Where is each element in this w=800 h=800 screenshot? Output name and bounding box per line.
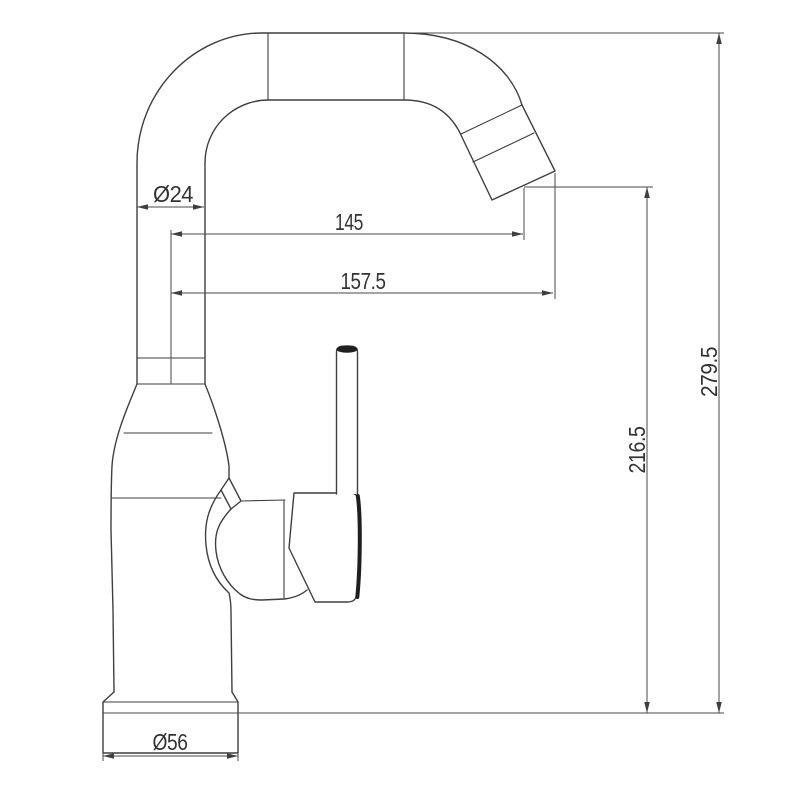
dim-outlet-height: 216.5 xyxy=(624,187,650,713)
arrowhead-left xyxy=(103,753,114,759)
dim-base-diameter: Ø56 xyxy=(103,729,238,759)
dim-label-reach-overall: 157.5 xyxy=(341,268,386,294)
dim-label-outlet-height: 216.5 xyxy=(624,427,650,474)
faucet-technical-drawing: Ø24 145 157.5 216.5 xyxy=(0,0,800,800)
dim-label-overall-height: 279.5 xyxy=(696,347,722,397)
arrowhead-bottom xyxy=(716,702,722,713)
arrowhead-left xyxy=(171,290,182,296)
arrowhead-right xyxy=(193,204,204,210)
housing-top-edge xyxy=(241,500,285,501)
dim-label-tube-diameter: Ø24 xyxy=(153,181,194,207)
handle-stick-fill xyxy=(337,346,358,494)
handle-base-fill xyxy=(289,493,360,602)
handle-junction-collar xyxy=(221,478,241,509)
arrowhead-left xyxy=(137,204,148,210)
dim-label-reach-to-outlet: 145 xyxy=(335,209,363,235)
arrowhead-left xyxy=(171,231,182,237)
arrowhead-top xyxy=(644,187,650,198)
arrowhead-bottom xyxy=(644,702,650,713)
technical-drawing-canvas: Ø24 145 157.5 216.5 xyxy=(0,0,800,800)
dimension-group: Ø24 145 157.5 216.5 xyxy=(103,33,724,761)
spout-seam-diagonal-upper xyxy=(461,105,522,134)
dim-label-base-diameter: Ø56 xyxy=(153,729,188,755)
dim-overall-height: 279.5 xyxy=(696,33,722,713)
dim-tube-diameter: Ø24 xyxy=(137,181,204,210)
housing-outer-curve xyxy=(206,490,232,692)
arrowhead-top xyxy=(716,33,722,44)
arrowhead-right xyxy=(227,753,238,759)
arrowhead-right xyxy=(542,290,553,296)
dim-reach-to-outlet: 145 xyxy=(171,209,523,237)
body-left-edge xyxy=(111,384,137,692)
handle-stick-cap xyxy=(336,346,357,353)
dim-reach-overall: 157.5 xyxy=(171,268,553,296)
faucet-outline-group xyxy=(103,33,555,753)
spout-seam-diagonal-lower xyxy=(473,133,534,162)
body-right-edge xyxy=(205,384,229,478)
arrowhead-right xyxy=(512,231,523,237)
